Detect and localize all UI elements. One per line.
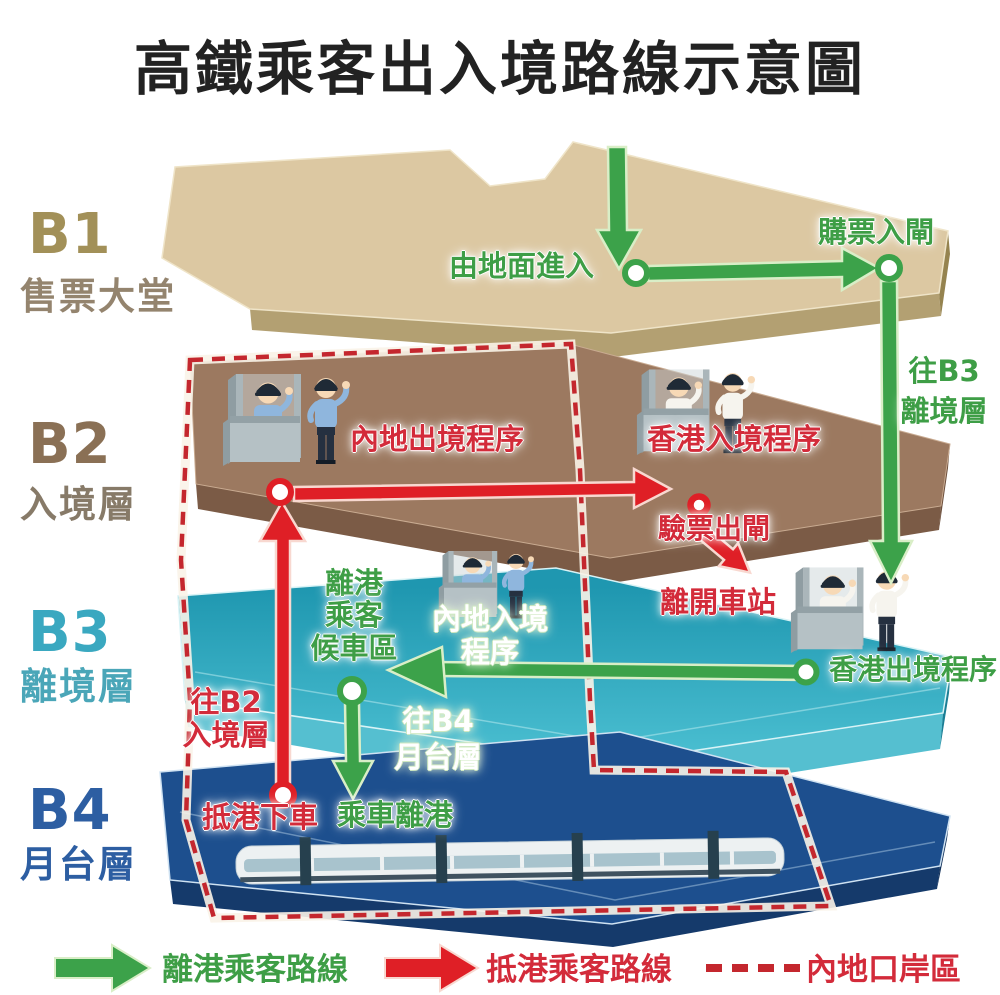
floor-name-b4: 月台層 xyxy=(20,834,137,888)
legend-arriving-route-label: 抵港乘客路線 xyxy=(486,944,672,989)
legend-red-arrow-icon xyxy=(385,945,478,991)
page-title: 高鐵乘客出入境路線示意圖 xyxy=(0,22,1000,106)
legend-green-arrow-icon xyxy=(55,945,150,991)
label-ticket-check-exit-gate: 驗票出閘 xyxy=(658,514,770,545)
floor-label-b2: B2 xyxy=(28,412,112,477)
green-node-gate xyxy=(878,257,900,279)
floor-name-b1: 售票大堂 xyxy=(20,266,176,320)
green-node-entry xyxy=(625,262,647,284)
label-to-b4: 往B4 月台層 xyxy=(380,703,496,776)
floor-label-b1: B1 xyxy=(28,202,112,267)
label-arrive-alight: 抵港下車 xyxy=(202,802,318,834)
diagram-canvas xyxy=(0,0,1000,995)
legend-mainland-port-area-label: 內地口岸區 xyxy=(806,944,961,989)
green-node-hk-exit xyxy=(796,662,817,683)
label-buy-ticket-enter-gate: 購票入閘 xyxy=(818,217,934,249)
red-node-b2 xyxy=(269,481,291,503)
label-mainland-entry-procedure: 內地入境 程序 xyxy=(418,603,562,670)
green-node-waiting xyxy=(340,679,364,703)
label-enter-from-ground: 由地面進入 xyxy=(449,251,594,283)
label-board-depart: 乘車離港 xyxy=(337,800,453,832)
booth-mainland-exit-officers xyxy=(223,374,350,466)
label-hk-exit-procedure: 香港出境程序 xyxy=(829,655,997,686)
label-to-b3: 往B3 離境層 xyxy=(884,351,1000,431)
label-hk-entry-procedure: 香港入境程序 xyxy=(647,424,821,456)
label-mainland-exit-procedure: 內地出境程序 xyxy=(350,424,524,456)
label-leave-station: 離開車站 xyxy=(660,587,776,619)
legend-departing-route-label: 離港乘客路線 xyxy=(162,944,348,989)
red-node-ticket-exit xyxy=(691,497,708,514)
label-to-b2: 往B2 入境層 xyxy=(170,686,282,753)
floor-name-b2: 入境層 xyxy=(20,474,137,528)
station-route-diagram: 高鐵乘客出入境路線示意圖 B1 售票大堂 B2 入境層 B3 離境層 B4 月台… xyxy=(0,0,1000,995)
floor-name-b3: 離境層 xyxy=(20,656,137,710)
label-departure-waiting-area: 離港 乘客 候車區 xyxy=(298,567,410,664)
